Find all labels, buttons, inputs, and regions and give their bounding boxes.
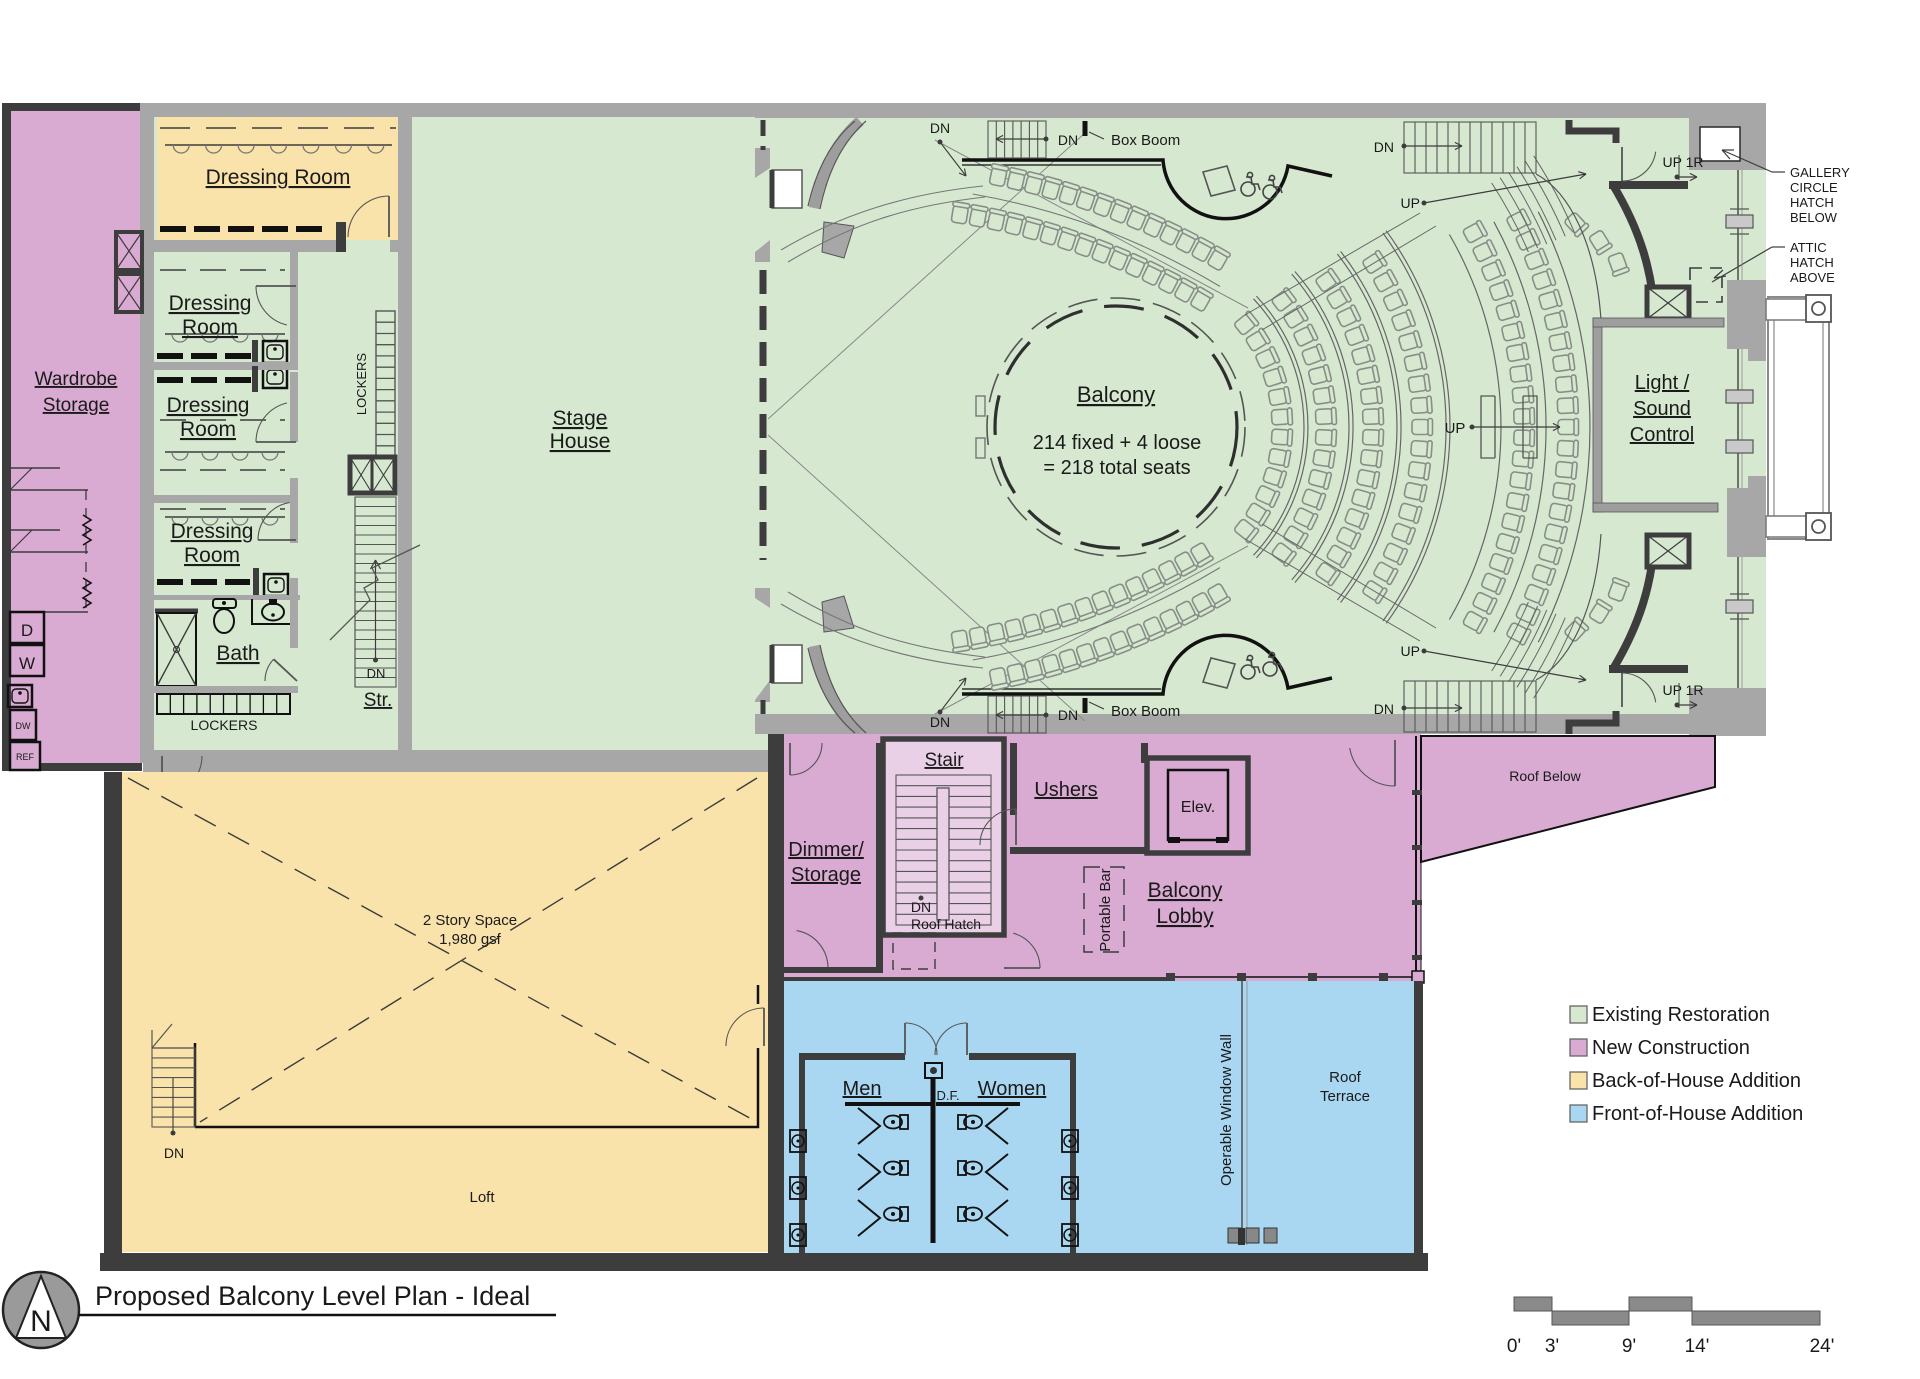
svg-text:DN: DN <box>911 899 931 915</box>
svg-text:Dressing Room: Dressing Room <box>206 166 351 189</box>
svg-text:Balcony: Balcony <box>1148 879 1223 902</box>
svg-text:Front-of-House Addition: Front-of-House Addition <box>1592 1103 1803 1125</box>
svg-text:UP: UP <box>1445 420 1466 437</box>
svg-text:Loft: Loft <box>469 1189 495 1206</box>
svg-text:ATTIC: ATTIC <box>1790 240 1827 255</box>
svg-text:3': 3' <box>1545 1336 1559 1357</box>
svg-text:Proposed Balcony Level Plan -: Proposed Balcony Level Plan - Ideal <box>95 1281 530 1311</box>
svg-text:Back-of-House Addition: Back-of-House Addition <box>1592 1070 1801 1092</box>
svg-text:Stair: Stair <box>924 750 964 771</box>
svg-text:DN: DN <box>1058 707 1078 723</box>
svg-text:Wardrobe: Wardrobe <box>35 369 118 390</box>
svg-text:Women: Women <box>978 1078 1047 1100</box>
svg-text:HATCH: HATCH <box>1790 255 1834 270</box>
svg-text:1,980 gsf: 1,980 gsf <box>439 931 502 948</box>
svg-text:DN: DN <box>367 666 386 681</box>
svg-text:DN: DN <box>1374 139 1394 155</box>
svg-text:Lobby: Lobby <box>1156 905 1214 928</box>
svg-text:Storage: Storage <box>43 395 110 416</box>
svg-text:Roof Hatch: Roof Hatch <box>911 916 981 932</box>
svg-text:LOCKERS: LOCKERS <box>354 353 369 415</box>
svg-text:Dressing: Dressing <box>167 394 250 417</box>
svg-text:= 218 total seats: = 218 total seats <box>1043 457 1190 479</box>
svg-text:DW: DW <box>16 721 31 731</box>
svg-text:Roof Below: Roof Below <box>1509 768 1581 784</box>
svg-text:Elev.: Elev. <box>1181 799 1215 816</box>
svg-text:Terrace: Terrace <box>1320 1088 1370 1105</box>
svg-text:Str.: Str. <box>364 690 393 711</box>
svg-text:Existing Restoration: Existing Restoration <box>1592 1004 1770 1026</box>
svg-text:UP: UP <box>1401 643 1420 659</box>
svg-text:REF: REF <box>16 752 35 762</box>
svg-text:Room: Room <box>182 316 238 339</box>
svg-text:Operable Window Wall: Operable Window Wall <box>1218 1034 1235 1186</box>
svg-text:UP: UP <box>1401 195 1420 211</box>
svg-text:214 fixed + 4 loose: 214 fixed + 4 loose <box>1033 432 1201 454</box>
svg-text:Control: Control <box>1630 424 1694 446</box>
svg-text:W: W <box>19 654 35 673</box>
svg-text:Stage: Stage <box>553 407 608 430</box>
svg-text:Room: Room <box>184 544 240 567</box>
svg-text:Box Boom: Box Boom <box>1111 703 1180 720</box>
svg-text:HATCH: HATCH <box>1790 195 1834 210</box>
svg-text:DN: DN <box>930 714 950 730</box>
svg-text:DN: DN <box>1058 132 1078 148</box>
svg-text:Sound: Sound <box>1633 398 1691 420</box>
svg-text:DN: DN <box>1374 701 1394 717</box>
svg-text:BELOW: BELOW <box>1790 210 1838 225</box>
svg-text:Storage: Storage <box>791 864 861 886</box>
svg-text:DN: DN <box>164 1145 184 1161</box>
svg-text:0': 0' <box>1507 1336 1521 1357</box>
svg-text:D: D <box>21 621 33 640</box>
svg-text:N: N <box>30 1305 52 1338</box>
svg-text:GALLERY: GALLERY <box>1790 165 1850 180</box>
svg-text:Portable Bar: Portable Bar <box>1097 868 1114 951</box>
svg-text:Men: Men <box>843 1078 882 1100</box>
svg-text:Roof: Roof <box>1329 1069 1362 1086</box>
svg-text:DN: DN <box>930 120 950 136</box>
svg-text:Light /: Light / <box>1635 372 1690 394</box>
svg-text:Bath: Bath <box>216 642 259 665</box>
svg-text:Box Boom: Box Boom <box>1111 132 1180 149</box>
svg-text:2 Story Space: 2 Story Space <box>423 912 517 929</box>
svg-text:Dressing: Dressing <box>171 520 254 543</box>
svg-text:CIRCLE: CIRCLE <box>1790 180 1838 195</box>
svg-text:14': 14' <box>1685 1336 1710 1357</box>
svg-text:Balcony: Balcony <box>1077 382 1155 407</box>
svg-text:LOCKERS: LOCKERS <box>191 717 258 733</box>
svg-text:9': 9' <box>1622 1336 1636 1357</box>
svg-text:House: House <box>550 430 611 453</box>
svg-text:Dressing: Dressing <box>169 292 252 315</box>
svg-text:UP 1R: UP 1R <box>1663 154 1704 170</box>
svg-text:Ushers: Ushers <box>1034 779 1097 801</box>
svg-text:24': 24' <box>1810 1336 1835 1357</box>
svg-text:UP 1R: UP 1R <box>1663 682 1704 698</box>
svg-text:Room: Room <box>180 418 236 441</box>
svg-text:D.F.: D.F. <box>936 1088 959 1103</box>
svg-text:ABOVE: ABOVE <box>1790 270 1835 285</box>
svg-text:New Construction: New Construction <box>1592 1037 1750 1059</box>
svg-text:Dimmer/: Dimmer/ <box>788 839 864 861</box>
